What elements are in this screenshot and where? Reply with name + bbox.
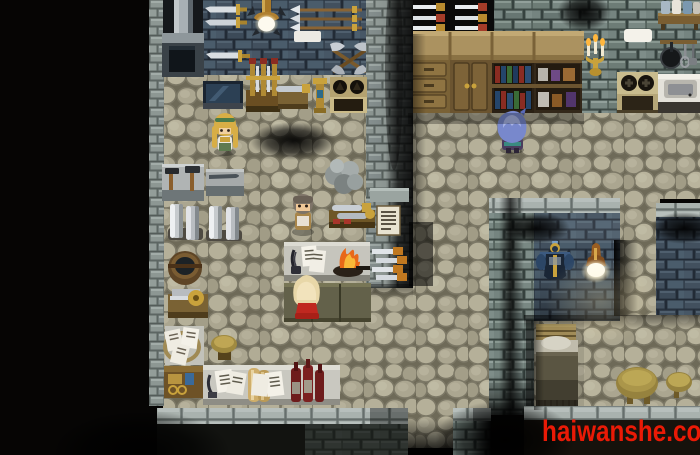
- svg-text:haiwanshe.com: haiwanshe.com: [542, 415, 700, 448]
